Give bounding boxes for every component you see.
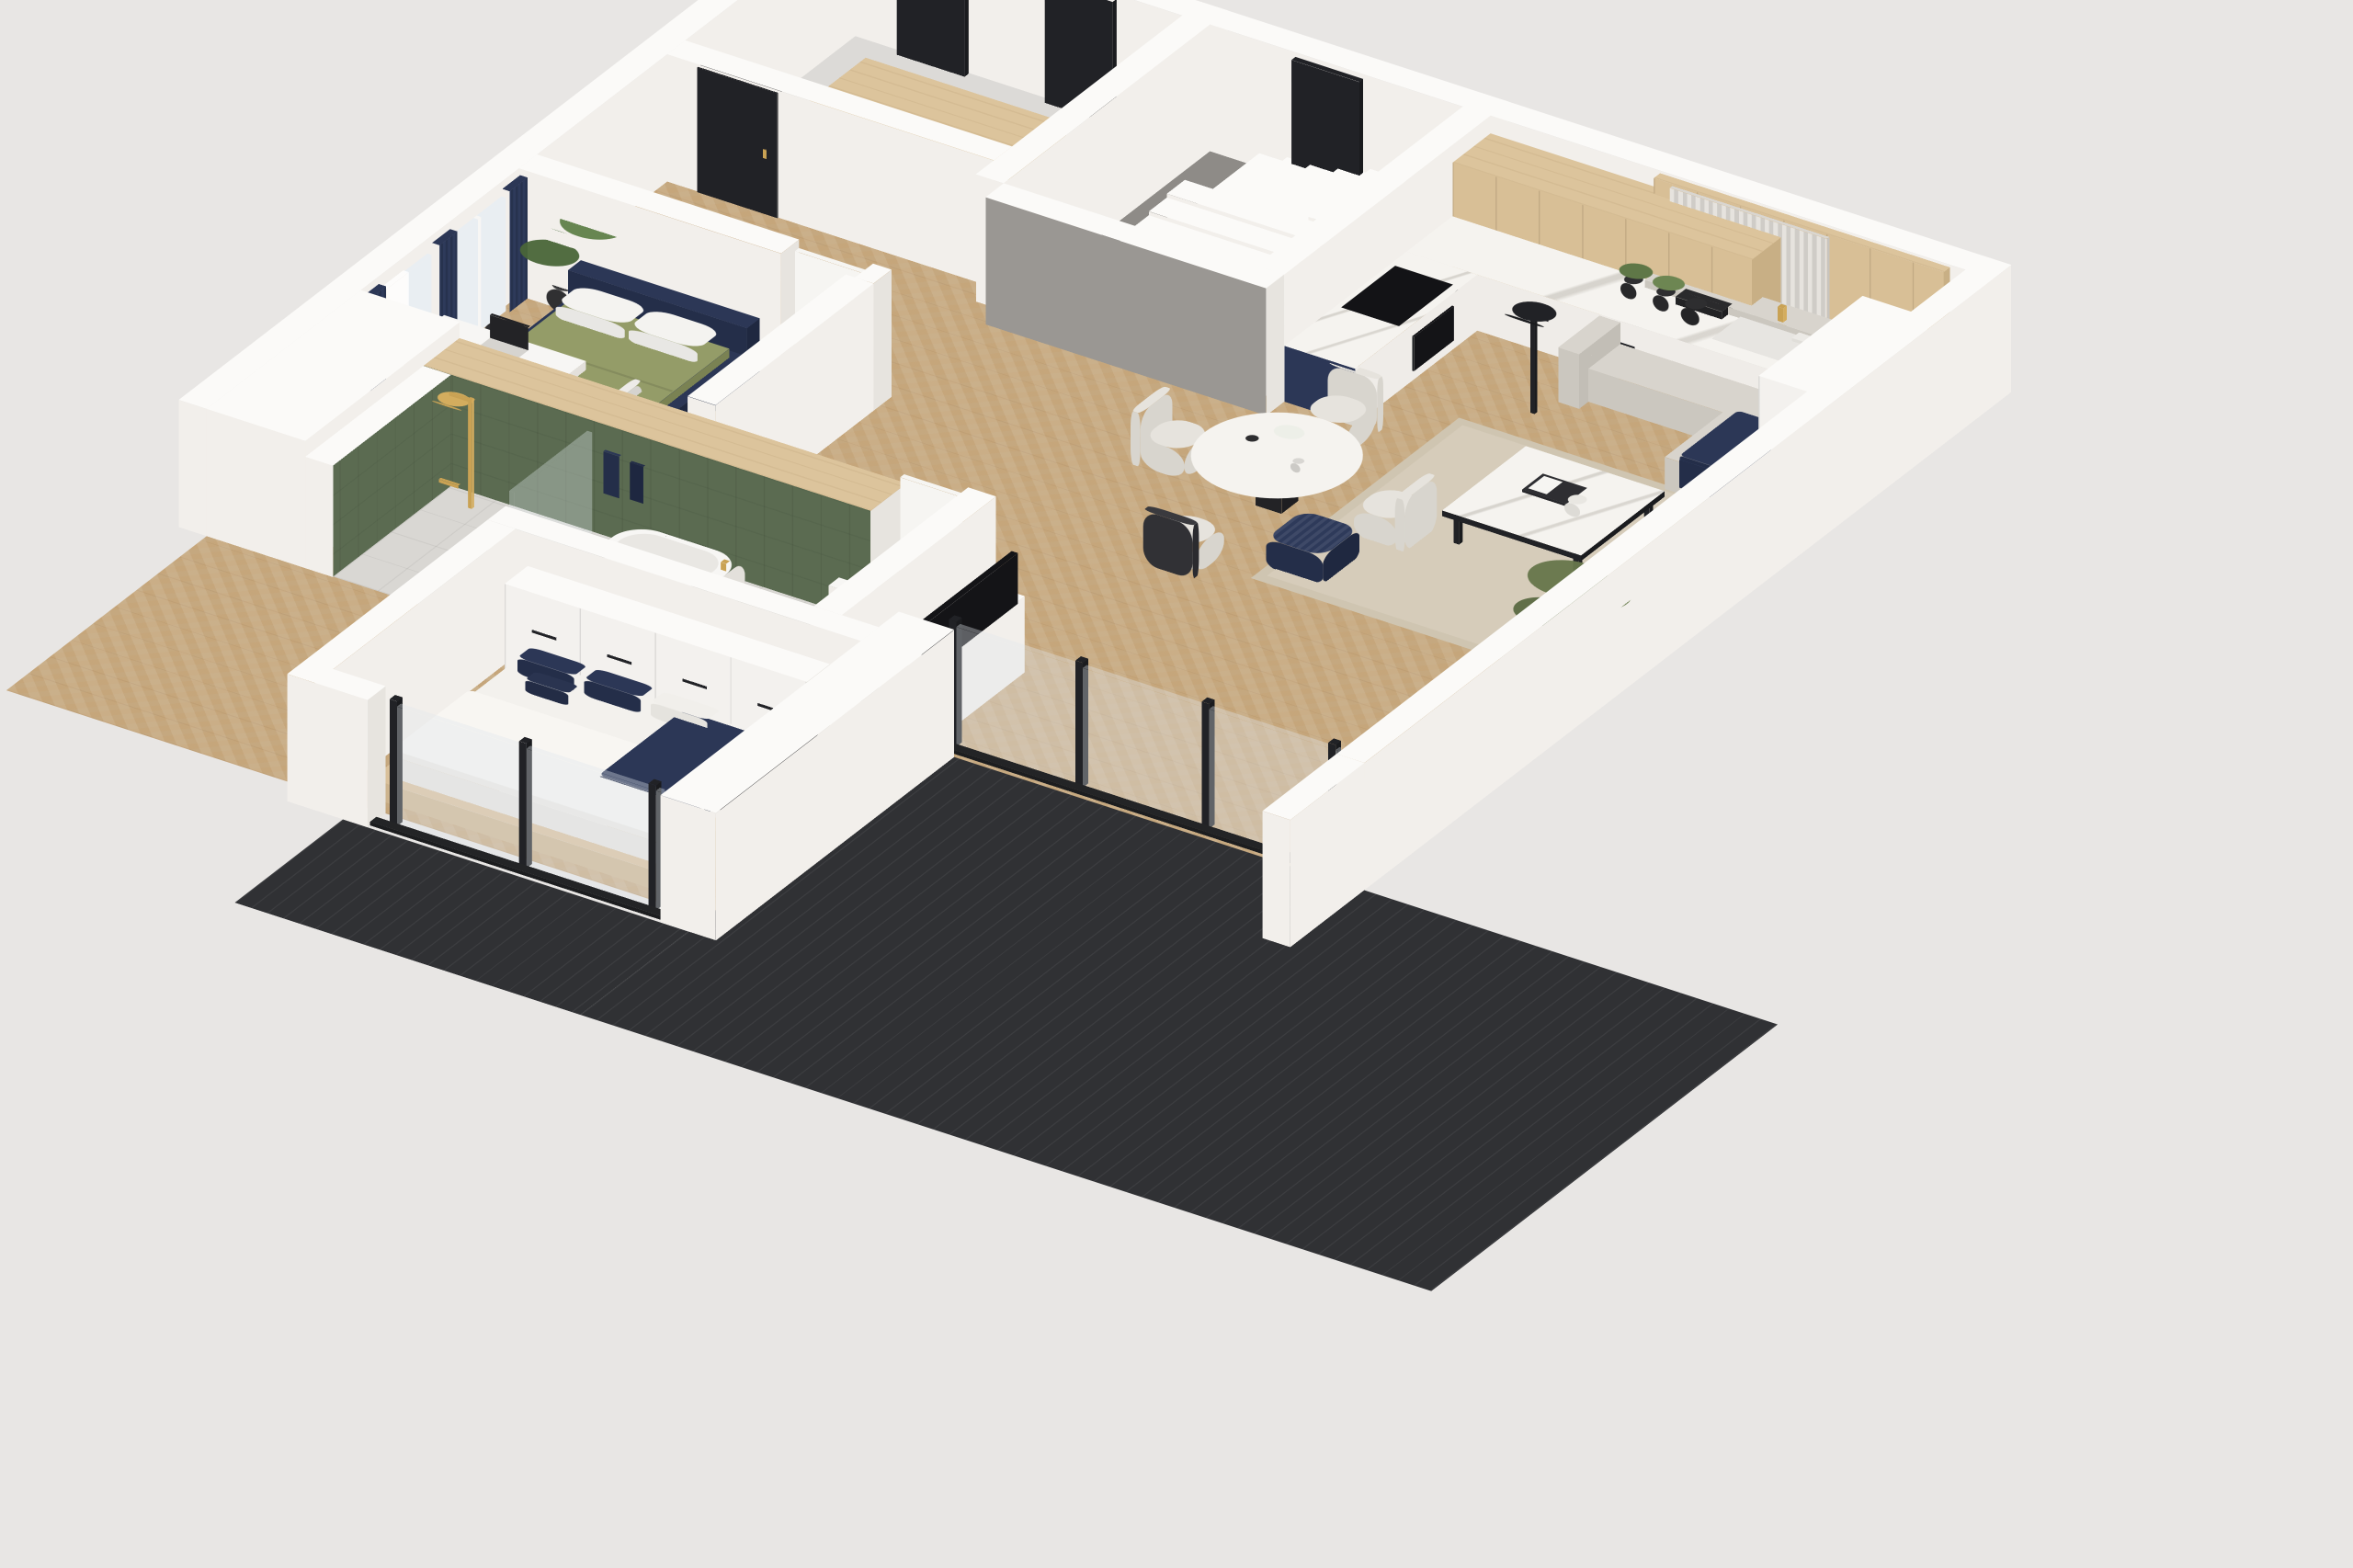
glass-frame-living-2-front: [1075, 661, 1083, 788]
dining-chair-east-back-front: [1395, 497, 1405, 554]
front-door-front: [697, 67, 777, 218]
glass-frame-bed2-3-front: [649, 783, 656, 910]
wall-bathroom-left-green-front: [305, 457, 333, 577]
wall-bedroom1-top-b-side: [873, 269, 892, 411]
glass-frame-bed2-2-front: [519, 741, 527, 868]
wall-bedroom2-bottom-side: [368, 687, 386, 828]
wall-stair-bottom-side: [1267, 274, 1285, 415]
wall-terrace-stub-right-front: [1263, 811, 1290, 947]
wall-bedroom2-bottom-front: [288, 674, 368, 827]
front-door-handle-front: [763, 149, 767, 159]
glass-frame-bed2-1-front: [390, 699, 397, 826]
towel-navy-2-front: [630, 462, 643, 504]
floorplan-render: [0, 0, 2353, 1568]
dining-chair-west-back-front: [1131, 411, 1141, 468]
window-mullion-a-side: [478, 217, 481, 333]
glass-frame-living-3-front: [1201, 701, 1209, 828]
dining-chair-south-back-side: [1192, 521, 1199, 580]
wall-left-front: [179, 400, 207, 536]
floor-lamp-pole-side: [1535, 315, 1538, 415]
towel-navy-1-front: [603, 451, 619, 498]
sofa-arm-left-front: [1558, 347, 1579, 409]
dining-chair-north-back-side: [1377, 375, 1383, 434]
wall-media-terrace-stub-front: [661, 795, 716, 940]
neighbor-door-1-side: [964, 0, 968, 77]
shower-pole-gold-side: [472, 398, 474, 509]
